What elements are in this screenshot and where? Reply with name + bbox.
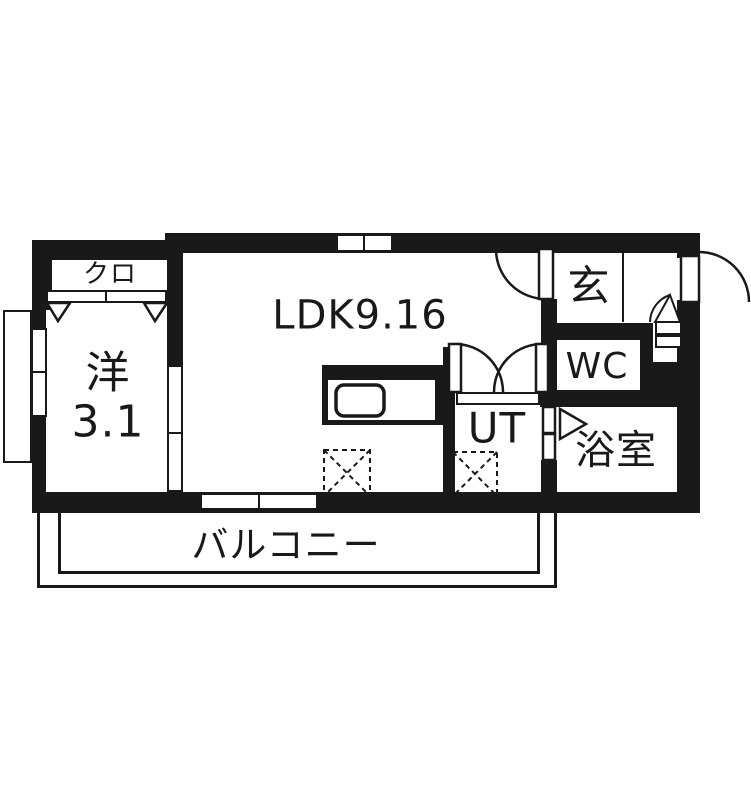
washer-space-icon [453,452,497,496]
closet-door-track [46,290,167,303]
double-door-ldk-ut-icon [449,344,548,392]
room-label-western-size: 3.1 [72,398,145,447]
window-top [336,234,393,252]
floor-plan: LDK9.16 洋 3.1 クロ 玄 WC UT 浴室 バルコニー [0,0,751,800]
room-label-closet: クロ [83,260,137,289]
sliding-door-western-ldk [167,365,183,492]
room-label-utility: UT [468,404,526,451]
refrigerator-space-icon [324,450,370,496]
kitchen-counter-top [328,380,435,420]
wall-right-top [677,233,700,258]
wall-ut-bath-lower [541,460,557,492]
wall-bath-top [540,390,697,407]
room-label-bathroom: 浴室 [575,429,657,474]
bathroom-door-opening [541,407,557,460]
closet-folding-door-icon [47,303,167,321]
entrance-nook-shelf-2 [655,335,682,348]
wall-left-upper [32,310,46,328]
entrance-door-opening [677,258,700,300]
wall-entrance-wc [541,323,653,340]
bay-window-frame [3,310,32,463]
door-swing-nook-icon [650,295,680,322]
window-left [31,328,47,417]
wall-bottom [32,492,697,513]
wall-ut-left [443,347,455,492]
wall-top-main [165,233,700,253]
room-label-western-name: 洋 [72,349,145,398]
room-label-western: 洋 3.1 [72,349,145,448]
door-swing-ldk-hall-icon [496,249,553,299]
window-balcony-door [200,493,318,510]
room-label-toilet: WC [566,347,629,387]
wall-ldk-hall [541,299,557,390]
wall-left-lower [32,417,46,492]
room-label-balcony: バルコニー [191,524,380,565]
wall-partition-western-ldk [167,253,183,365]
entrance-nook-shelf-1 [655,321,682,335]
room-label-entrance: 玄 [567,262,610,309]
wall-top-left [32,240,183,260]
room-label-ldk: LDK9.16 [272,294,447,339]
